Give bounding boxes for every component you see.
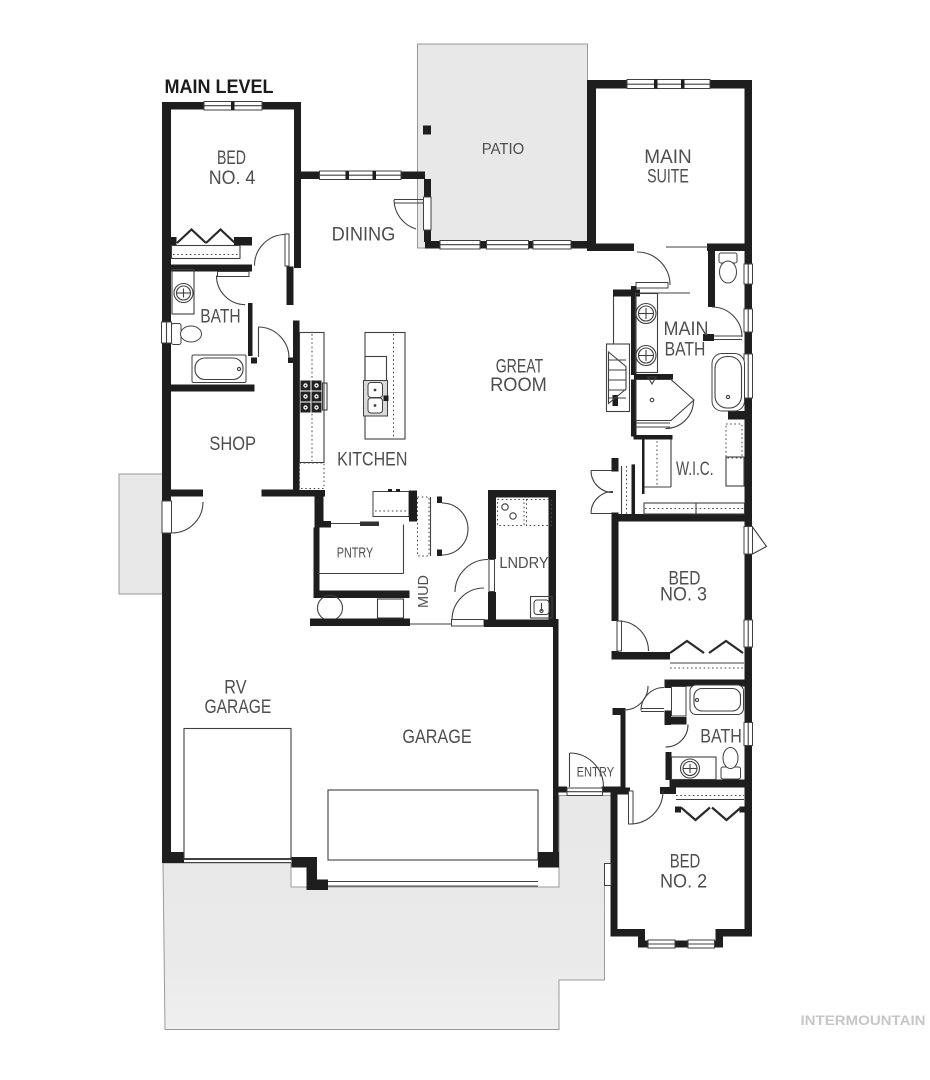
svg-text:W.I.C.: W.I.C. xyxy=(676,459,714,480)
svg-text:GARAGE: GARAGE xyxy=(205,697,272,718)
svg-text:DINING: DINING xyxy=(332,224,396,245)
svg-text:INTERMOUNTAIN: INTERMOUNTAIN xyxy=(801,1013,926,1028)
svg-text:PNTRY: PNTRY xyxy=(337,544,374,561)
svg-text:NO. 3: NO. 3 xyxy=(660,585,707,606)
svg-text:SHOP: SHOP xyxy=(209,434,256,455)
svg-text:PATIO: PATIO xyxy=(482,141,525,158)
svg-text:NO. 4: NO. 4 xyxy=(209,168,256,189)
svg-text:BATH: BATH xyxy=(665,339,706,360)
svg-text:MAIN: MAIN xyxy=(644,147,691,168)
svg-text:BED: BED xyxy=(670,851,701,872)
svg-text:SUITE: SUITE xyxy=(647,166,689,187)
svg-text:GARAGE: GARAGE xyxy=(402,727,471,748)
svg-text:MUD: MUD xyxy=(415,575,432,608)
svg-text:MAIN LEVEL: MAIN LEVEL xyxy=(165,77,274,98)
svg-text:RV: RV xyxy=(224,677,246,698)
svg-text:KITCHEN: KITCHEN xyxy=(337,449,407,470)
svg-text:ENTRY: ENTRY xyxy=(577,765,615,780)
svg-text:MAIN: MAIN xyxy=(664,319,709,340)
svg-text:BATH: BATH xyxy=(200,306,240,327)
svg-text:LNDRY: LNDRY xyxy=(499,555,549,572)
svg-text:BATH: BATH xyxy=(700,726,742,747)
svg-text:NO. 2: NO. 2 xyxy=(660,872,707,893)
svg-text:ROOM: ROOM xyxy=(490,375,547,396)
svg-text:BED: BED xyxy=(217,148,246,169)
